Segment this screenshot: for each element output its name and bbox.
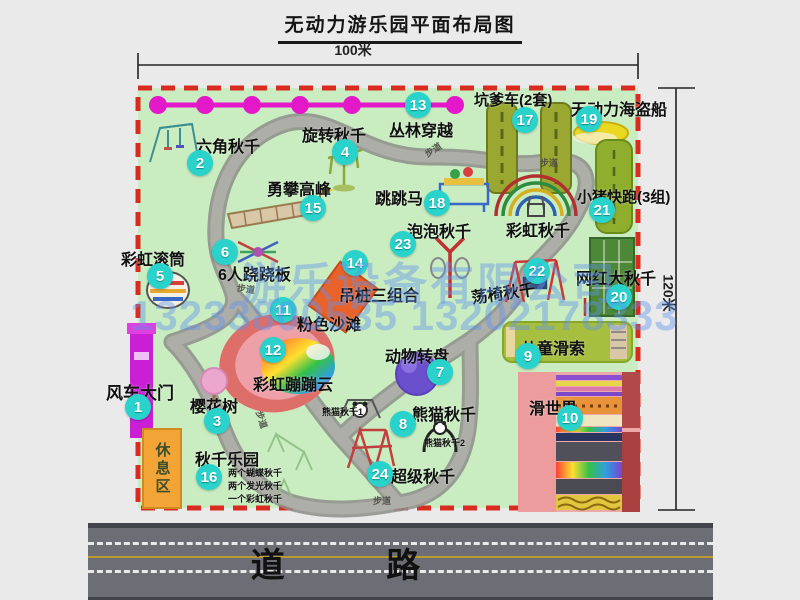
marker-14: 14 bbox=[342, 250, 368, 276]
label-swing-park-sub3: 一个彩虹秋千 bbox=[228, 492, 282, 505]
label-swing-park-sub1: 两个蝴蝶秋千 bbox=[228, 466, 282, 479]
label-panda-swing: 熊猫秋千 bbox=[412, 401, 476, 425]
marker-3: 3 bbox=[204, 408, 230, 434]
screenshot-page: 无动力游乐园平面布局图 100米 120米 bbox=[0, 0, 800, 600]
marker-6: 6 bbox=[212, 239, 238, 265]
road-label: 道 路 bbox=[46, 538, 671, 587]
marker-13: 13 bbox=[405, 92, 431, 118]
marker-16: 16 bbox=[196, 464, 222, 490]
slide-world-icon bbox=[518, 372, 640, 512]
label-panda-swing-2: 熊猫秋千2 bbox=[424, 436, 465, 449]
label-rainbow-arch-swing: 彩虹秋千 bbox=[506, 217, 570, 241]
marker-7: 7 bbox=[427, 359, 453, 385]
marker-4: 4 bbox=[332, 139, 358, 165]
marker-10: 10 bbox=[557, 405, 583, 431]
width-dimension-line bbox=[138, 53, 638, 79]
marker-18: 18 bbox=[424, 190, 450, 216]
marker-24: 24 bbox=[367, 461, 393, 487]
label-jungle-crossing: 丛林穿越 bbox=[389, 117, 453, 141]
label-climbing-peak: 勇攀高峰 bbox=[267, 176, 331, 200]
marker-9: 9 bbox=[515, 343, 541, 369]
rest-area: 休息区 bbox=[142, 428, 182, 509]
label-pit-car: 坑爹车(2套) bbox=[474, 89, 552, 110]
rest-area-label: 休息区 bbox=[152, 442, 173, 496]
label-swing-park-sub2: 两个发光秋千 bbox=[228, 479, 282, 492]
label-hanging-pile: 吊桩三组合 bbox=[339, 282, 419, 306]
label-rotary-swing: 旋转秋千 bbox=[302, 122, 366, 146]
height-dimension-line bbox=[658, 88, 695, 510]
label-rainbow-cloud: 彩虹蹦蹦云 bbox=[253, 371, 333, 395]
marker-17: 17 bbox=[512, 107, 538, 133]
label-panda-swing-1: 熊猫秋千1 bbox=[322, 405, 363, 418]
marker-23: 23 bbox=[390, 231, 416, 257]
label-super-swing: 超级秋千 bbox=[391, 463, 455, 487]
label-jump-horse: 跳跳马 bbox=[375, 185, 423, 209]
marker-19: 19 bbox=[576, 106, 602, 132]
label-seesaw: 6人跷跷板 bbox=[218, 261, 291, 285]
marker-2: 2 bbox=[187, 150, 213, 176]
marker-21: 21 bbox=[589, 197, 615, 223]
road: 道 路 bbox=[88, 523, 713, 600]
marker-20: 20 bbox=[606, 284, 632, 310]
marker-8: 8 bbox=[390, 411, 416, 437]
marker-11: 11 bbox=[270, 297, 296, 323]
marker-5: 5 bbox=[147, 263, 173, 289]
label-pink-beach: 粉色沙滩 bbox=[297, 311, 361, 335]
marker-12: 12 bbox=[260, 337, 286, 363]
path-label-5: 步道 bbox=[373, 494, 391, 507]
path-label-2: 步道 bbox=[540, 156, 558, 169]
label-bubble-swing: 泡泡秋千 bbox=[407, 218, 471, 242]
marker-22: 22 bbox=[524, 258, 550, 284]
marker-15: 15 bbox=[300, 195, 326, 221]
marker-1: 1 bbox=[125, 394, 151, 420]
